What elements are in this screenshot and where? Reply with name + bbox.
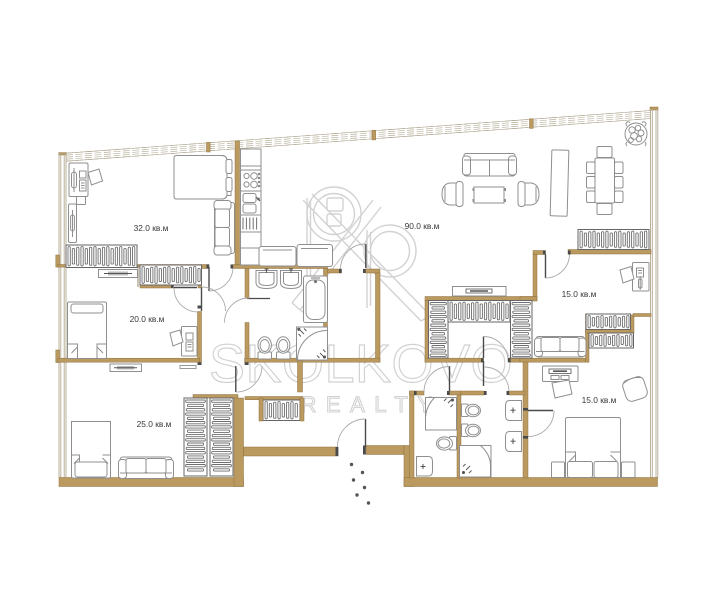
svg-text:25.0 кв.м: 25.0 кв.м — [137, 419, 172, 429]
svg-text:REALTY: REALTY — [301, 392, 442, 417]
svg-text:SKOLKOVO: SKOLKOVO — [209, 334, 513, 394]
svg-text:32.0 кв.м: 32.0 кв.м — [134, 223, 169, 233]
svg-text:15.0 кв.м: 15.0 кв.м — [582, 395, 617, 405]
svg-text:90.0 кв.м: 90.0 кв.м — [405, 221, 440, 231]
svg-text:15.0 кв.м: 15.0 кв.м — [562, 289, 597, 299]
svg-text:20.0 кв.м: 20.0 кв.м — [130, 314, 165, 324]
